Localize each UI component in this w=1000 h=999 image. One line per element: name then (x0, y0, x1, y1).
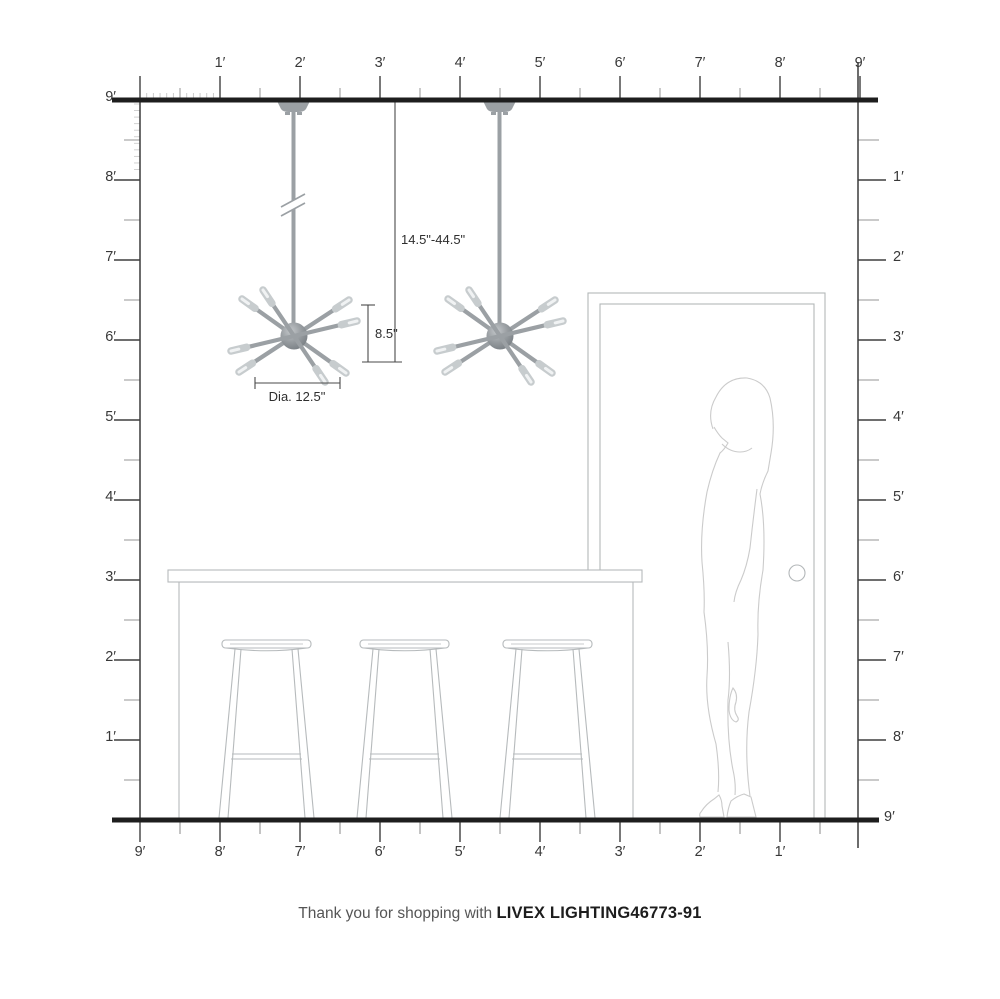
left-ruler-label: 8′ (74, 169, 116, 185)
bottom-ruler-label: 7′ (295, 844, 306, 860)
right-ruler-label: 2′ (893, 249, 904, 265)
top-ruler-label: 1′ (215, 55, 226, 71)
top-ruler-label: 9′ (855, 55, 866, 71)
top-ruler-label: 6′ (615, 55, 626, 71)
drop-range-dimension-text: 14.5"-44.5" (401, 232, 465, 247)
left-ruler-label: 9′ (74, 89, 116, 105)
top-ruler-label: 7′ (695, 55, 706, 71)
caption-prefix: Thank you for shopping with (298, 905, 496, 922)
left-ruler-minor-ticks (124, 140, 140, 780)
top-ruler-label: 3′ (375, 55, 386, 71)
right-ruler-label: 4′ (893, 409, 904, 425)
product-dimension-diagram: 1′ 2′ 3′ 4′ 5′ 6′ 7′ 8′ 9′ 9′ 8′ 7′ 6′ 5… (0, 0, 1000, 999)
caption-brand: LIVEX LIGHTING46773-91 (496, 904, 701, 922)
left-ruler-label: 6′ (74, 329, 116, 345)
right-ruler-label: 7′ (893, 649, 904, 665)
bottom-ruler-label: 3′ (615, 844, 626, 860)
right-ruler-label: 6′ (893, 569, 904, 585)
left-ruler-label: 3′ (74, 569, 116, 585)
bottom-ruler-label: 1′ (775, 844, 786, 860)
left-ruler-label: 2′ (74, 649, 116, 665)
left-ruler-label: 1′ (74, 729, 116, 745)
left-ruler-label: 7′ (74, 249, 116, 265)
bottom-ruler-label: 2′ (695, 844, 706, 860)
bottom-ruler-label: 4′ (535, 844, 546, 860)
bar-counter (168, 570, 642, 820)
fixture-diameter-dimension-text: Dia. 12.5" (269, 389, 326, 404)
right-ruler-label: 1′ (893, 169, 904, 185)
right-ruler-label: 9′ (884, 809, 895, 825)
right-ruler-label: 8′ (893, 729, 904, 745)
top-ruler-label: 2′ (295, 55, 306, 71)
right-ruler-minor-ticks (858, 140, 879, 780)
bottom-ruler-label: 8′ (215, 844, 226, 860)
right-ruler-label: 3′ (893, 329, 904, 345)
bottom-ruler-label: 5′ (455, 844, 466, 860)
left-ruler-label: 4′ (74, 489, 116, 505)
caption: Thank you for shopping with LIVEX LIGHTI… (0, 904, 1000, 923)
left-ruler-label: 5′ (74, 409, 116, 425)
right-ruler-label: 5′ (893, 489, 904, 505)
top-ruler-label: 4′ (455, 55, 466, 71)
left-ruler-inch-ticks (134, 104, 140, 170)
room-scale-drawing (0, 0, 1000, 999)
top-ruler-label: 8′ (775, 55, 786, 71)
bottom-ruler-label: 6′ (375, 844, 386, 860)
fixture-height-dimension-text: 8.5" (375, 326, 398, 341)
pendant-fixture-left (231, 101, 357, 382)
bottom-ruler-major-ticks (140, 820, 780, 842)
bottom-ruler-label: 9′ (135, 844, 146, 860)
top-ruler-label: 5′ (535, 55, 546, 71)
